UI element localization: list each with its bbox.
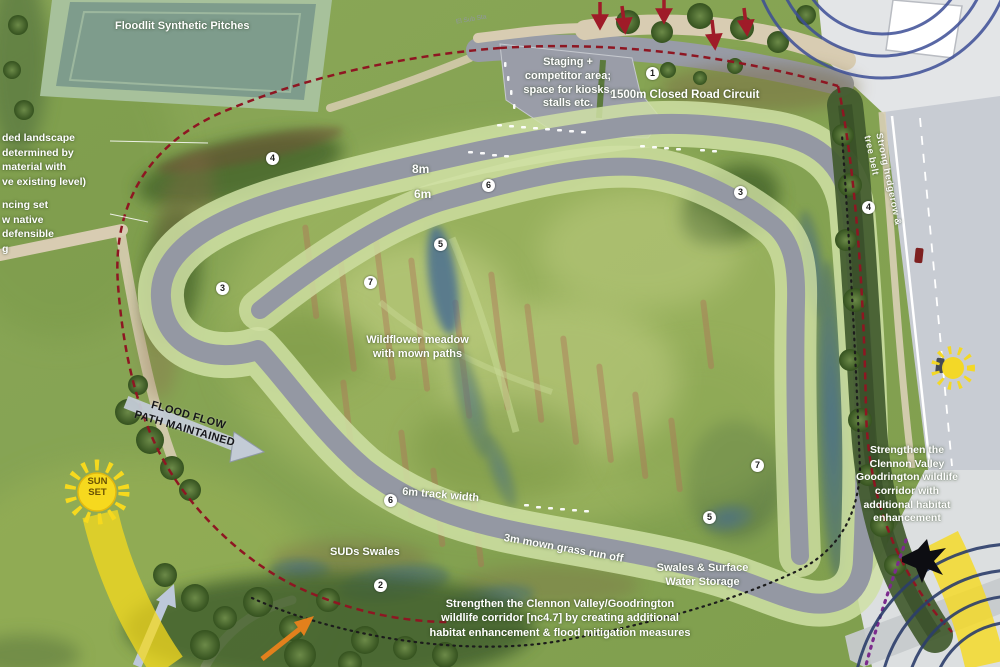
key-marker: 2: [374, 579, 387, 592]
wildlife-right-label: Strengthen the Clennon Valley Goodringto…: [843, 444, 971, 526]
swales-storage-label: Swales & Surface Water Storage: [635, 562, 770, 590]
left-note-1: ded landscape determined by material wit…: [2, 131, 86, 190]
track-6m-label: 6m: [414, 187, 431, 202]
staging-label: Staging + competitor area; space for kio…: [492, 56, 644, 111]
car-icon: [914, 248, 924, 264]
key-marker: 7: [364, 276, 377, 289]
key-marker: 7: [751, 459, 764, 472]
synthetic-pitch: [40, 0, 332, 112]
key-marker: 6: [482, 179, 495, 192]
key-marker: 3: [216, 282, 229, 295]
key-marker: 5: [703, 511, 716, 524]
building-footprint: [886, 0, 962, 58]
track-8m-label: 8m: [412, 162, 429, 177]
wildlife-bottom-label: Strengthen the Clennon Valley/Goodringto…: [390, 597, 730, 640]
key-marker: 5: [434, 238, 447, 251]
left-note-2: ncing set w native defensible g: [2, 198, 54, 257]
key-marker: 1: [646, 67, 659, 80]
circuit-label: 1500m Closed Road Circuit: [585, 88, 785, 102]
key-marker: 4: [862, 201, 875, 214]
pitches-label: Floodlit Synthetic Pitches: [115, 20, 249, 34]
sunset-label: SUN SET: [79, 477, 116, 499]
site-masterplan: Floodlit Synthetic Pitches ded landscape…: [0, 0, 1000, 667]
suds-label: SUDs Swales: [330, 546, 400, 560]
meadow-label: Wildflower meadow with mown paths: [330, 334, 505, 362]
key-marker: 4: [266, 152, 279, 165]
key-marker: 3: [734, 186, 747, 199]
key-marker: 6: [384, 494, 397, 507]
